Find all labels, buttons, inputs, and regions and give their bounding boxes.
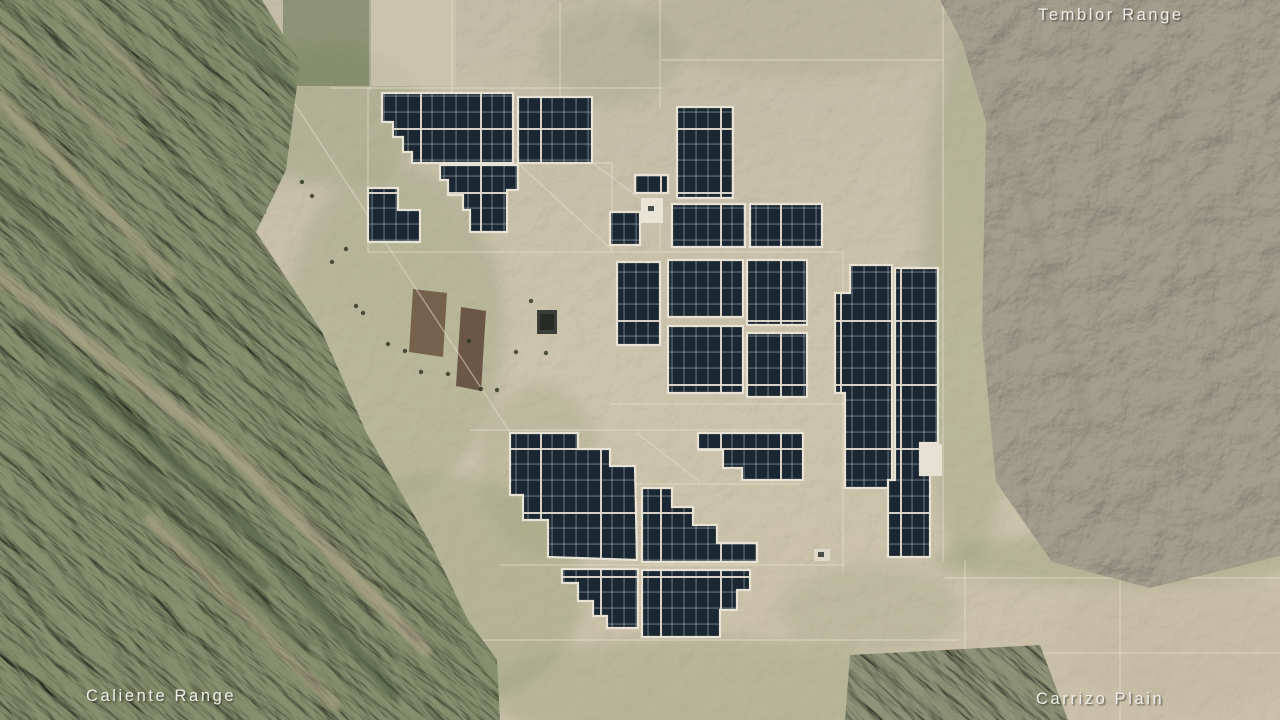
tree <box>479 387 483 391</box>
inverter-pad <box>919 444 942 476</box>
tree <box>544 351 548 355</box>
solar-array-center-left <box>617 262 660 345</box>
tree <box>467 339 471 343</box>
tree <box>495 388 499 392</box>
satellite-scene: Temblor Range Temblor Range Caliente Ran… <box>0 0 1280 720</box>
tree <box>419 370 423 374</box>
brown-field-1 <box>409 289 447 357</box>
solar-array-north-tall <box>677 107 733 198</box>
tree <box>361 311 365 315</box>
solar-array-east-col-right <box>888 268 938 557</box>
tree <box>354 304 358 308</box>
carrizo-plain-label: Carrizo Plain <box>1036 690 1164 708</box>
solar-array-center-mid-upper <box>668 260 743 317</box>
tree <box>300 180 304 184</box>
tree <box>514 350 518 354</box>
solar-array-center-mid-lower <box>668 326 743 393</box>
tree <box>446 372 450 376</box>
tree <box>344 247 348 251</box>
substation-yard <box>540 314 554 330</box>
caliente-range-label: Caliente Range <box>86 687 236 705</box>
solar-array-north-mini <box>635 175 668 193</box>
solar-array-north-mid-right <box>750 204 822 247</box>
solar-array-north-square <box>610 212 640 245</box>
vegetation-patch <box>780 565 960 655</box>
tree <box>386 342 390 346</box>
brown-field-2 <box>456 307 486 391</box>
tree <box>330 260 334 264</box>
solar-array-nw-right <box>518 97 592 163</box>
utility-pad-mark <box>648 206 654 211</box>
tree <box>529 299 533 303</box>
tan-field <box>371 0 456 86</box>
solar-array-north-mid-left <box>672 204 745 247</box>
vegetation-patch <box>540 5 680 105</box>
solar-array-center-right-lower <box>747 333 807 397</box>
satellite-image: Temblor Range Temblor Range Caliente Ran… <box>0 0 1280 720</box>
tree <box>403 349 407 353</box>
temblor-range-label: Temblor Range <box>1038 6 1184 24</box>
tree <box>310 194 314 198</box>
facility-mark <box>818 552 824 557</box>
solar-array-center-right-upper <box>747 260 807 325</box>
